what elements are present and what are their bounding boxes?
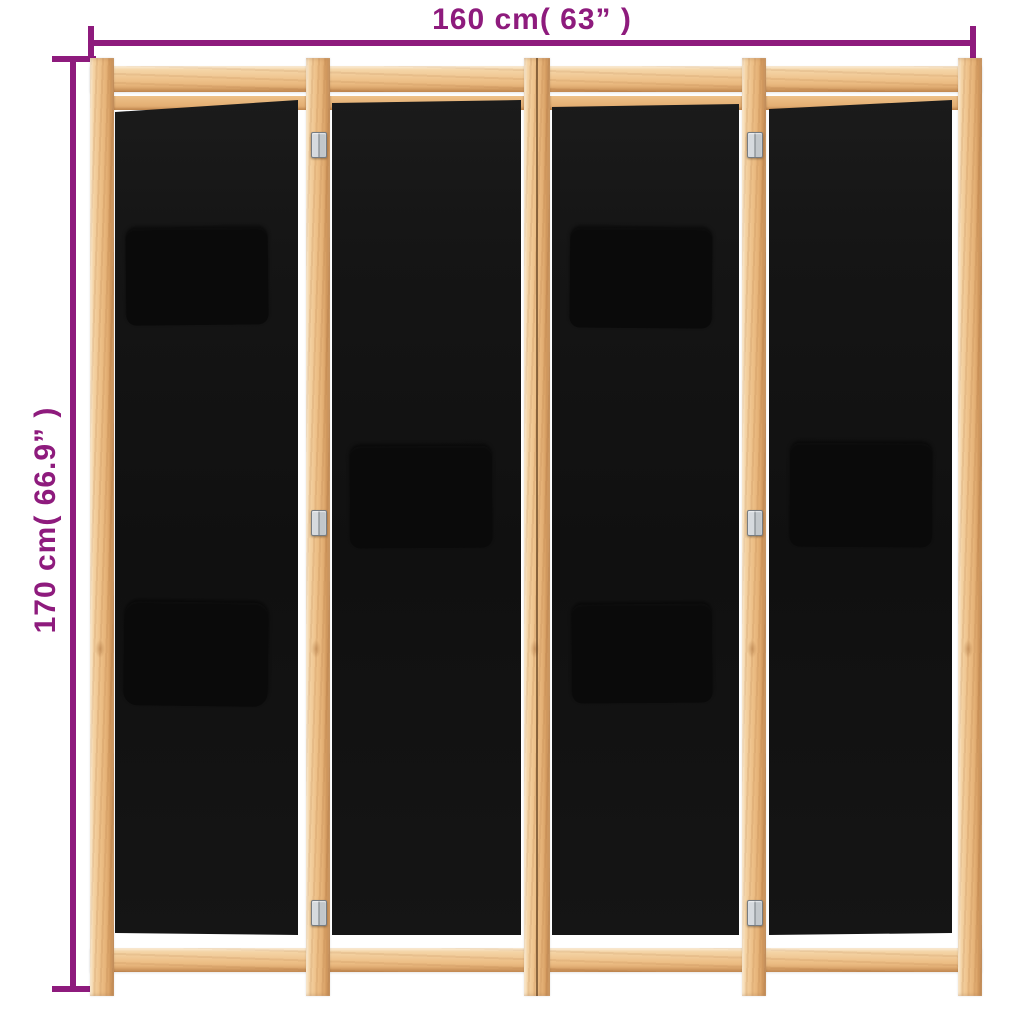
storage-pocket xyxy=(570,227,713,328)
frame-post-3 xyxy=(524,58,550,996)
storage-pocket xyxy=(123,601,268,707)
storage-pocket xyxy=(350,446,493,549)
width-dimension-label: 160 cm( 63” ) xyxy=(88,3,976,37)
frame-post-5 xyxy=(958,58,982,996)
fabric-panel-2 xyxy=(332,100,521,935)
height-dimension-line xyxy=(70,58,76,992)
frame-post-3-seam xyxy=(536,58,538,996)
width-dimension-tick-left xyxy=(88,26,94,60)
hinge xyxy=(311,900,327,926)
hinge xyxy=(747,132,763,158)
hinge xyxy=(747,900,763,926)
fabric-panel-1 xyxy=(115,100,298,935)
storage-pocket xyxy=(790,443,933,548)
width-dimension-line xyxy=(88,40,976,46)
hinge xyxy=(747,510,763,536)
storage-pocket xyxy=(125,227,268,325)
product-image: 160 cm( 63” ) 170 cm( 66.9” ) xyxy=(0,0,1024,1024)
hinge xyxy=(311,510,327,536)
hinge xyxy=(311,132,327,158)
fabric-panel-4 xyxy=(769,100,952,935)
fabric-panel-3 xyxy=(552,100,739,935)
height-dimension-label: 170 cm( 66.9” ) xyxy=(29,370,63,670)
width-dimension-tick-right xyxy=(970,26,976,60)
storage-pocket xyxy=(572,603,713,703)
frame-post-1 xyxy=(90,58,114,996)
